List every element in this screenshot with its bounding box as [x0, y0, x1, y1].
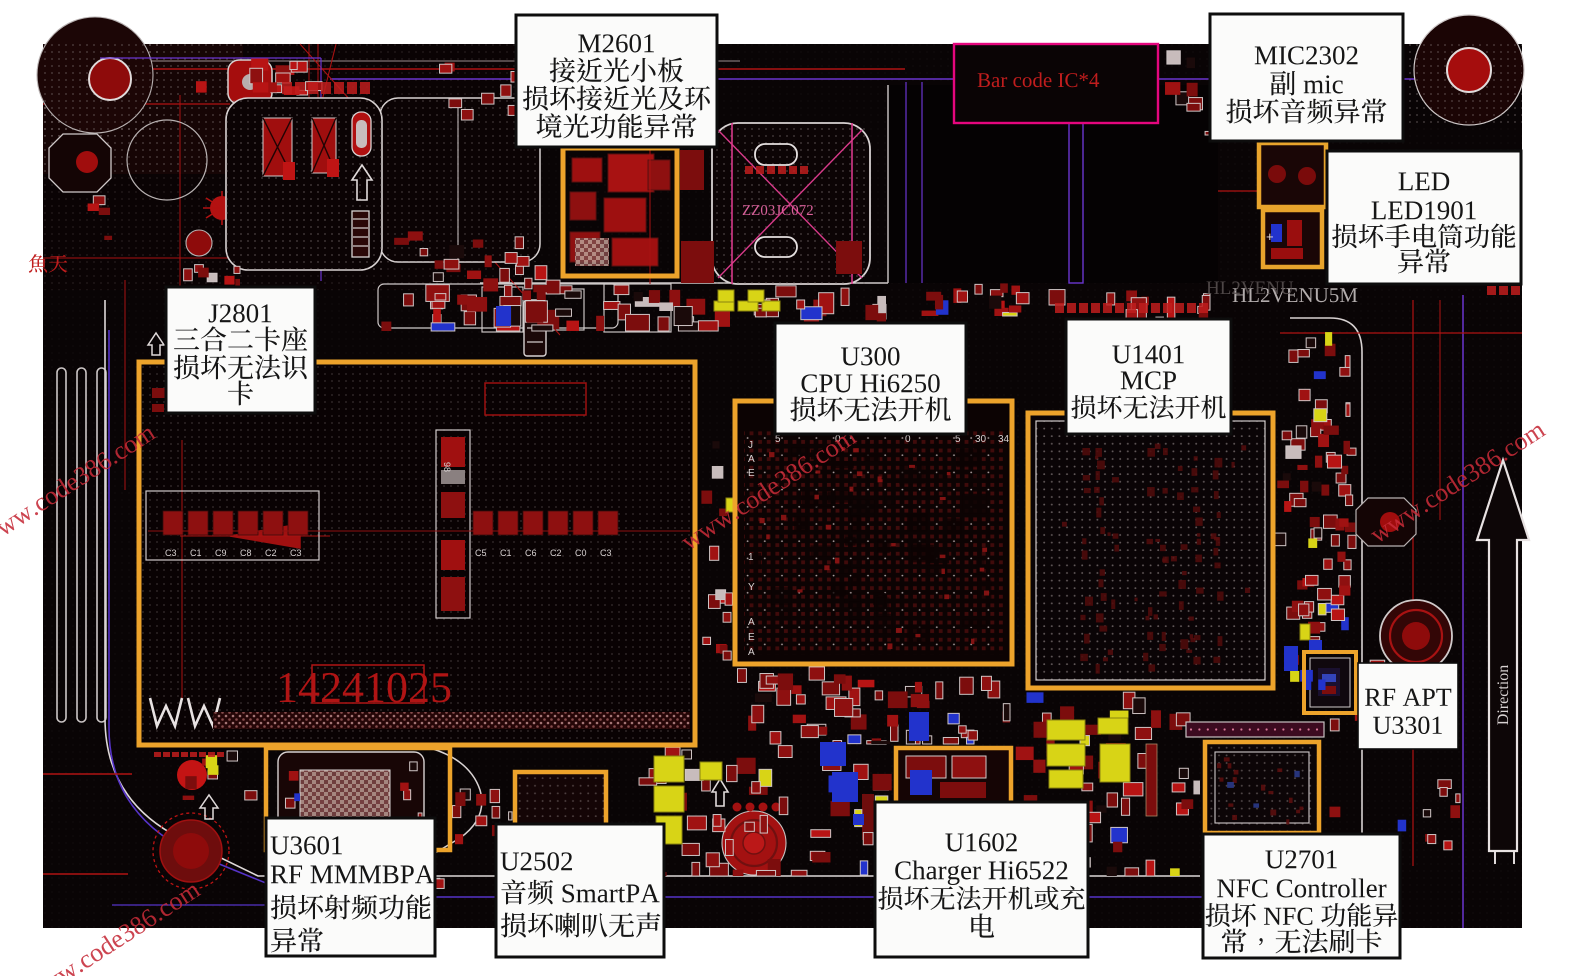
svg-text:J: J — [748, 440, 753, 451]
svg-text:5: 5 — [955, 434, 961, 445]
svg-text:C2: C2 — [550, 548, 562, 558]
svg-text:C6: C6 — [525, 548, 537, 558]
svg-text:C3: C3 — [600, 548, 612, 558]
svg-text:E: E — [748, 632, 755, 643]
svg-text:C5: C5 — [475, 548, 487, 558]
svg-text:C3: C3 — [165, 548, 177, 558]
svg-text:+: + — [1266, 229, 1274, 244]
svg-text:C1: C1 — [500, 548, 512, 558]
svg-text:C9: C9 — [215, 548, 227, 558]
svg-text:0: 0 — [905, 434, 911, 445]
svg-text:C2: C2 — [265, 548, 277, 558]
svg-text:A: A — [748, 454, 755, 465]
svg-text:A: A — [748, 617, 755, 628]
svg-text:1: 1 — [748, 552, 754, 563]
svg-text:Y: Y — [748, 582, 755, 593]
svg-text:98: 98 — [442, 462, 452, 472]
svg-text:A: A — [748, 647, 755, 658]
svg-text:C1: C1 — [190, 548, 202, 558]
svg-text:E: E — [748, 468, 755, 479]
svg-text:5: 5 — [775, 434, 781, 445]
svg-text:C3: C3 — [290, 548, 302, 558]
svg-text:C8: C8 — [240, 548, 252, 558]
svg-text:34: 34 — [998, 434, 1010, 445]
svg-text:C0: C0 — [575, 548, 587, 558]
svg-text:30: 30 — [975, 434, 987, 445]
